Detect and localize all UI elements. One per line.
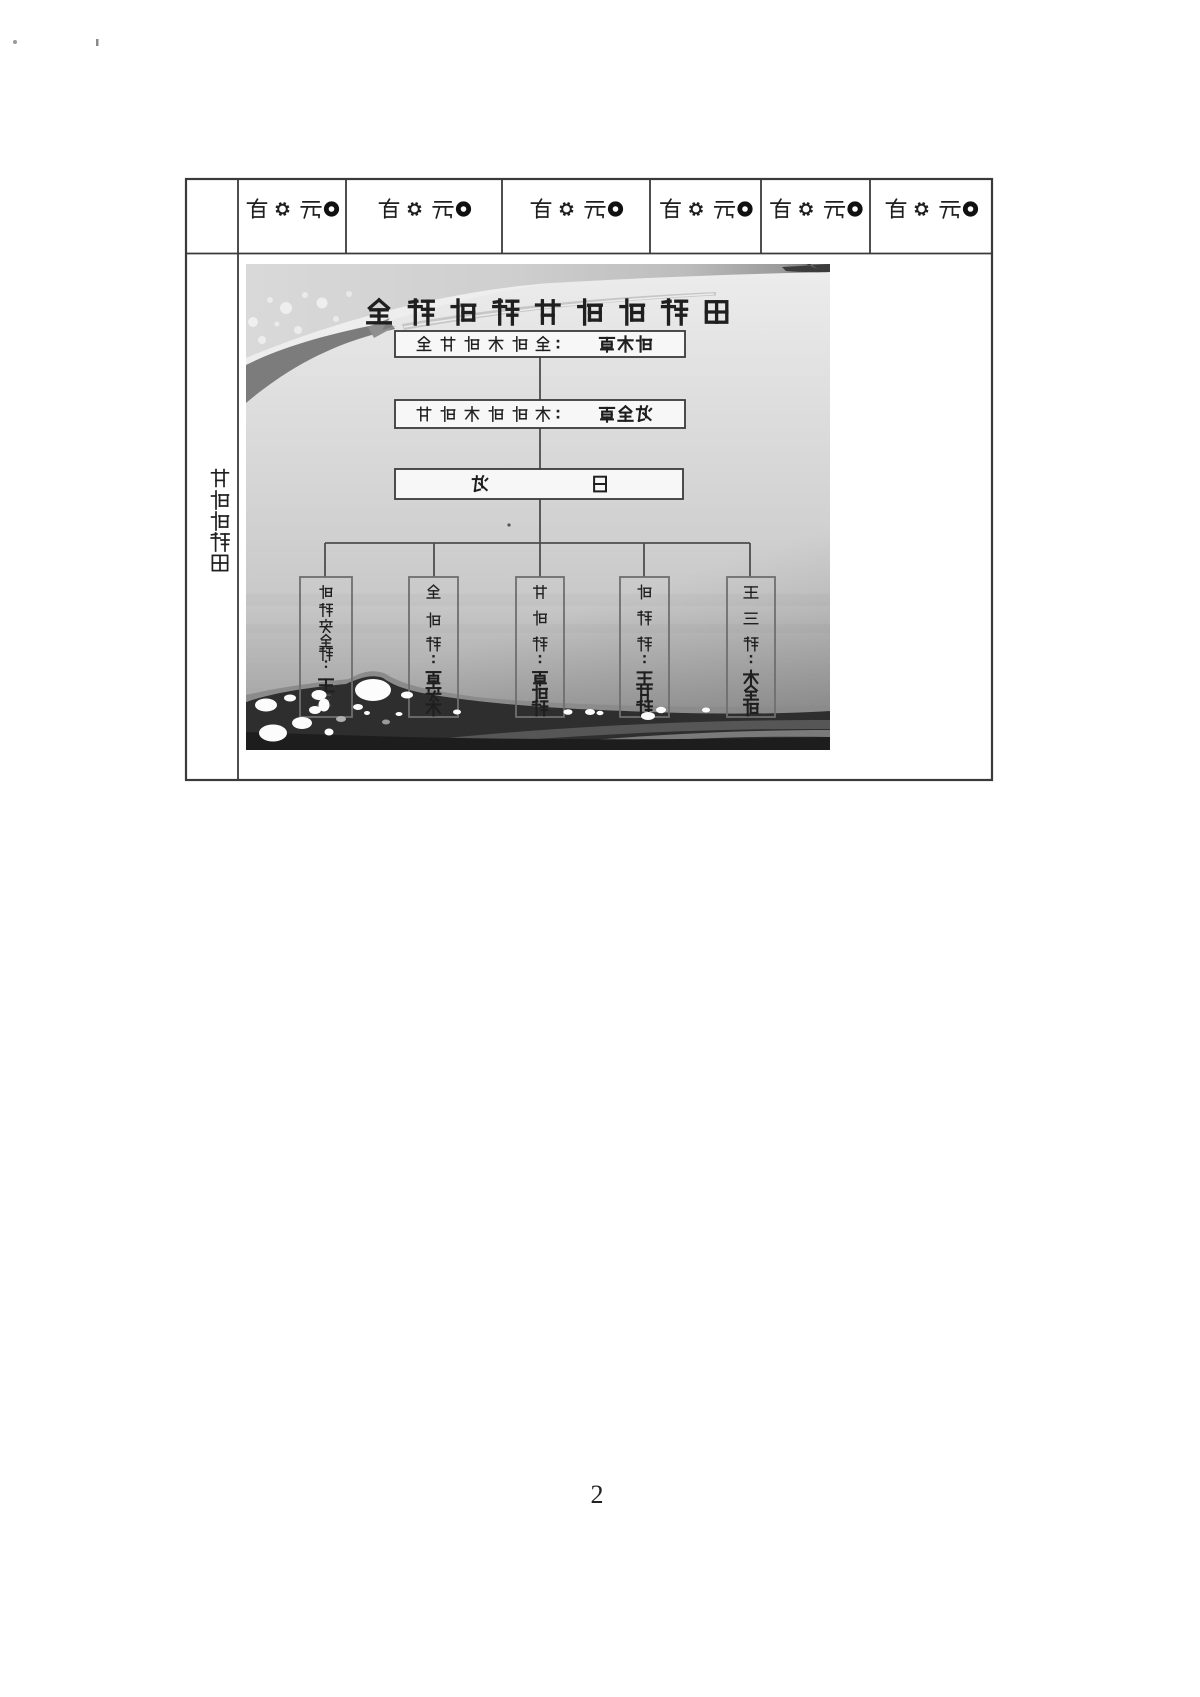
svg-text:2: 2 [591, 1480, 604, 1509]
